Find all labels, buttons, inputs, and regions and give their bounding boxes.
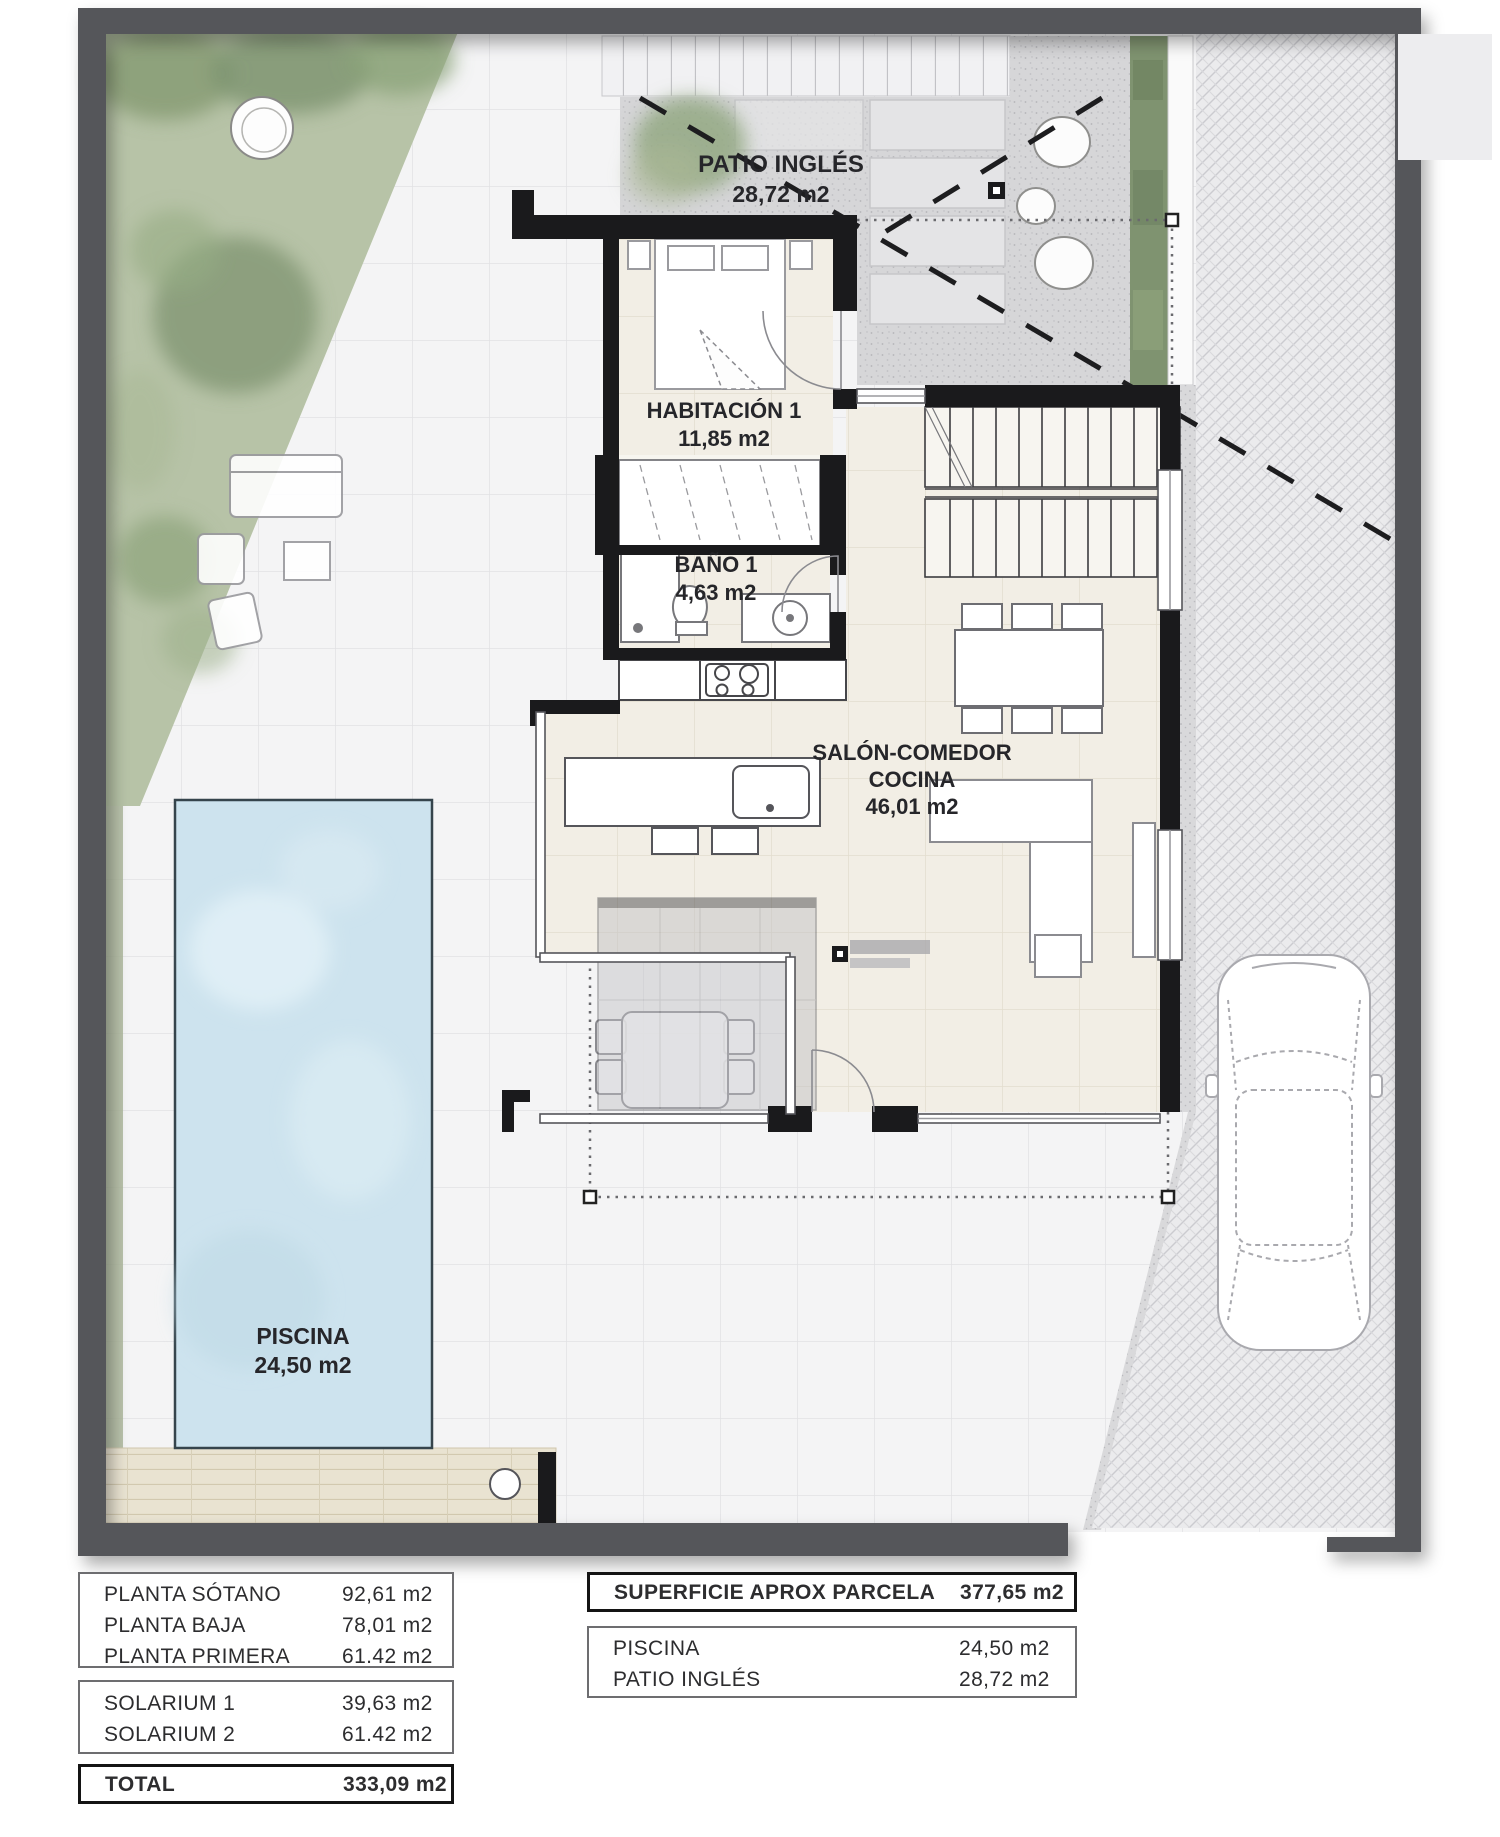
row-label: SOLARIUM 2 [104, 1719, 342, 1750]
garden-boulder [231, 97, 293, 159]
salon-label-2: COCINA [869, 767, 956, 792]
table-row: TOTAL 333,09 m2 [81, 1769, 451, 1800]
side-table [1035, 935, 1081, 977]
bedroom-area: 11,85 m2 [678, 426, 770, 451]
row-value: 61.42 m2 [342, 1641, 433, 1672]
table-solarium: SOLARIUM 1 39,63 m2 SOLARIUM 2 61.42 m2 [78, 1680, 454, 1754]
table-exterior: PISCINA 24,50 m2 PATIO INGLÉS 28,72 m2 [587, 1626, 1077, 1698]
table-row: PLANTA SÓTANO 92,61 m2 [80, 1579, 452, 1610]
terrace-glazing-v [786, 957, 795, 1114]
deck-wall-stub [538, 1452, 556, 1523]
terrace-glazing-h [540, 953, 790, 962]
pool-deck [104, 1448, 556, 1523]
bath-area: 4,63 m2 [676, 580, 757, 605]
row-value: 28,72 m2 [959, 1664, 1050, 1695]
parcela-value: 377,65 m2 [960, 1577, 1064, 1608]
wall-bath-bottom [603, 648, 846, 660]
total-label: TOTAL [105, 1769, 343, 1800]
wall-bedroom-top [512, 215, 857, 239]
row-label: SOLARIUM 1 [104, 1688, 342, 1719]
floor-plan-svg: PATIO INGLÉS 28,72 m2 HABITACIÓN 1 11,85… [0, 0, 1500, 1837]
wall-bedroom-left [603, 239, 619, 455]
salon-label-1: SALÓN-COMEDOR [812, 740, 1011, 765]
top-steps [602, 36, 1010, 96]
row-value: 92,61 m2 [342, 1579, 433, 1610]
boundary-wall-top [78, 8, 1420, 34]
total-value: 333,09 m2 [343, 1769, 447, 1800]
row-value: 78,01 m2 [342, 1610, 433, 1641]
table-row: SUPERFICIE APROX PARCELA 377,65 m2 [590, 1577, 1074, 1608]
table-row: PLANTA PRIMERA 61.42 m2 [80, 1641, 452, 1672]
patio-area: 28,72 m2 [732, 181, 829, 207]
table-row: PATIO INGLÉS 28,72 m2 [589, 1664, 1075, 1695]
stool [652, 828, 698, 854]
bed [628, 239, 812, 389]
car [1206, 955, 1382, 1350]
wall-bedroom-right [833, 239, 857, 311]
row-label: PATIO INGLÉS [613, 1664, 959, 1695]
parcela-label: SUPERFICIE APROX PARCELA [614, 1577, 960, 1608]
row-label: PLANTA SÓTANO [104, 1579, 342, 1610]
table-parcela: SUPERFICIE APROX PARCELA 377,65 m2 [587, 1572, 1077, 1612]
pool-area: 24,50 m2 [254, 1352, 351, 1378]
floor-plan-sheet: PATIO INGLÉS 28,72 m2 HABITACIÓN 1 11,85… [0, 0, 1500, 1837]
kitchen-counter [619, 660, 846, 700]
south-glazing-west [540, 1114, 768, 1123]
shower [621, 554, 679, 642]
wall-right [1160, 385, 1180, 470]
salon-area: 46,01 m2 [866, 794, 959, 819]
row-label: PLANTA BAJA [104, 1610, 342, 1641]
wall-bath-left [603, 552, 619, 650]
garden-side-strip [104, 806, 123, 1448]
boundary-wall-left [78, 8, 106, 1556]
table-row: SOLARIUM 1 39,63 m2 [80, 1688, 452, 1719]
table-total: TOTAL 333,09 m2 [78, 1764, 454, 1804]
wardrobe [619, 460, 820, 546]
stool [712, 828, 758, 854]
row-value: 39,63 m2 [342, 1688, 433, 1719]
row-label: PLANTA PRIMERA [104, 1641, 342, 1672]
table-row: SOLARIUM 2 61.42 m2 [80, 1719, 452, 1750]
table-row: PLANTA BAJA 78,01 m2 [80, 1610, 452, 1641]
row-value: 24,50 m2 [959, 1633, 1050, 1664]
boundary-wall-right [1395, 8, 1421, 1552]
patio-label: PATIO INGLÉS [698, 150, 864, 178]
wall-bottom-right-jamb [872, 1106, 918, 1132]
neighbor-slab [1398, 34, 1492, 160]
row-value: 61.42 m2 [342, 1719, 433, 1750]
tv-unit [1133, 823, 1155, 957]
table-plantas: PLANTA SÓTANO 92,61 m2 PLANTA BAJA 78,01… [78, 1572, 454, 1668]
row-label: PISCINA [613, 1633, 959, 1664]
boundary-wall-return [1327, 1537, 1421, 1552]
table-row: PISCINA 24,50 m2 [589, 1633, 1075, 1664]
outdoor-shower [490, 1469, 520, 1499]
pool [175, 800, 432, 1448]
boundary-wall-bottom [78, 1523, 1068, 1556]
west-glazing [536, 712, 545, 957]
pool-label: PISCINA [256, 1323, 349, 1349]
dining-set [955, 604, 1103, 733]
bedroom-label: HABITACIÓN 1 [647, 398, 802, 423]
bath-label: BAÑO 1 [674, 552, 757, 577]
wall-hall-top [925, 385, 1180, 407]
